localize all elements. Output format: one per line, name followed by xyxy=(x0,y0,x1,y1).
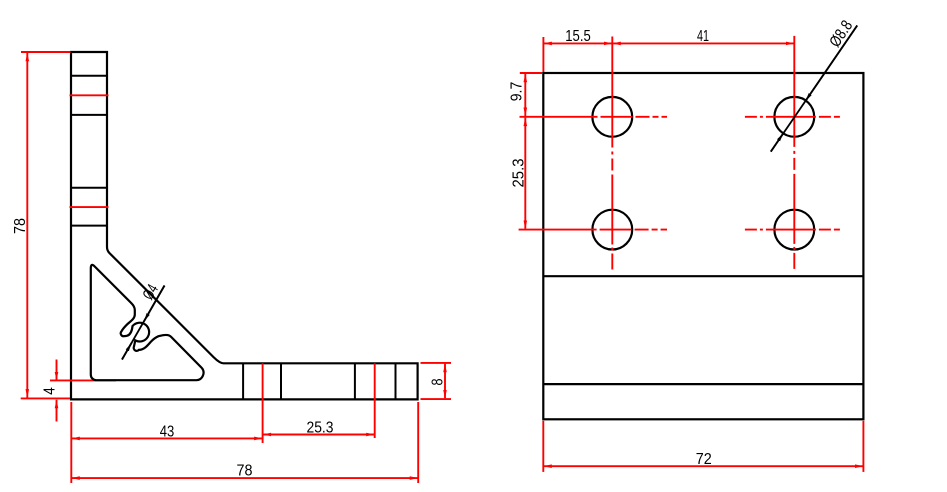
svg-text:78: 78 xyxy=(237,463,253,480)
svg-text:8: 8 xyxy=(430,378,447,385)
svg-text:43: 43 xyxy=(160,423,175,440)
svg-text:15.5: 15.5 xyxy=(565,28,591,45)
svg-text:Ø4: Ø4 xyxy=(140,282,162,303)
svg-text:78: 78 xyxy=(12,218,29,234)
svg-text:25.3: 25.3 xyxy=(511,158,528,187)
svg-text:25.3: 25.3 xyxy=(307,419,334,436)
svg-text:41: 41 xyxy=(697,28,709,45)
svg-text:72: 72 xyxy=(696,451,712,468)
svg-text:4: 4 xyxy=(41,387,58,395)
svg-text:9.7: 9.7 xyxy=(509,82,526,102)
